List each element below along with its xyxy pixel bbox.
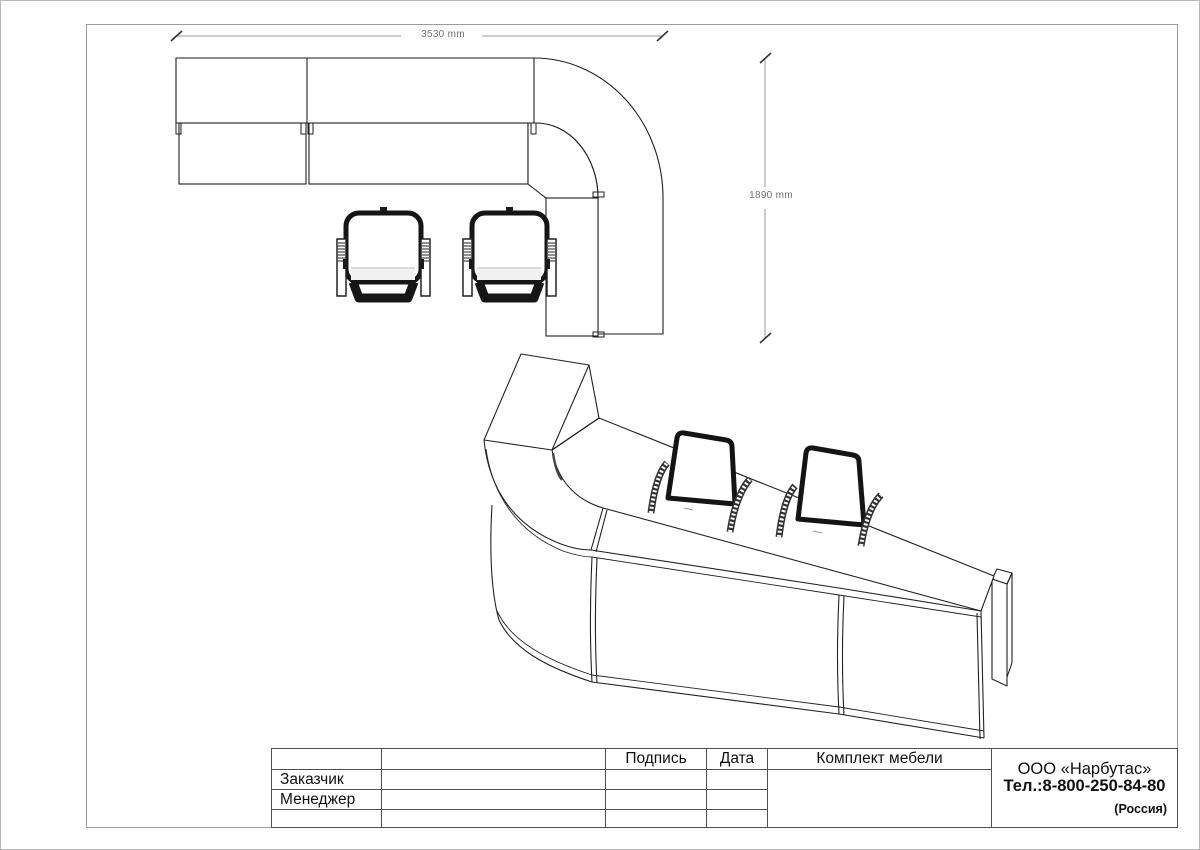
table-cell <box>606 790 707 810</box>
company-country: (Россия) <box>1114 802 1167 816</box>
table-cell <box>382 810 606 827</box>
table-cell <box>272 749 382 770</box>
table-cell <box>707 770 768 790</box>
signature-column-header: Подпись <box>606 749 707 770</box>
plan-chair-2 <box>463 207 556 298</box>
dimension-width-label: 3530 mm <box>404 29 482 40</box>
iso-view <box>484 354 1012 739</box>
plan-desk-left <box>179 123 306 184</box>
plan-desk-right <box>309 123 528 184</box>
plan-chair-1 <box>337 207 430 298</box>
table-cell <box>606 770 707 790</box>
table-cell <box>768 770 992 827</box>
table-cell <box>606 810 707 827</box>
table-cell <box>382 790 606 810</box>
drawing-title: Комплект мебели <box>768 749 992 770</box>
iso-return-box <box>992 569 1012 686</box>
table-cell <box>382 770 606 790</box>
table-cell <box>707 790 768 810</box>
company-phone: Тел.:8-800-250-84-80 <box>1004 778 1166 795</box>
company-info: ООО «Нарбутас» Тел.:8-800-250-84-80 (Рос… <box>992 749 1177 827</box>
table-cell <box>382 749 606 770</box>
table-cell <box>707 810 768 827</box>
title-block: Подпись Дата Комплект мебели ООО «Нарбут… <box>271 748 1178 828</box>
manager-row-label: Менеджер <box>272 790 382 810</box>
drawing-canvas <box>1 1 1200 850</box>
iso-deck <box>552 418 994 611</box>
drawing-sheet: 3530 mm 1890 mm Подпись Дата Комплект ме… <box>0 0 1200 850</box>
plan-view <box>171 31 771 343</box>
customer-row-label: Заказчик <box>272 770 382 790</box>
date-column-header: Дата <box>707 749 768 770</box>
company-name: ООО «Нарбутас» <box>1018 761 1152 778</box>
dimension-depth-label: 1890 mm <box>736 190 806 201</box>
table-cell <box>272 810 382 827</box>
